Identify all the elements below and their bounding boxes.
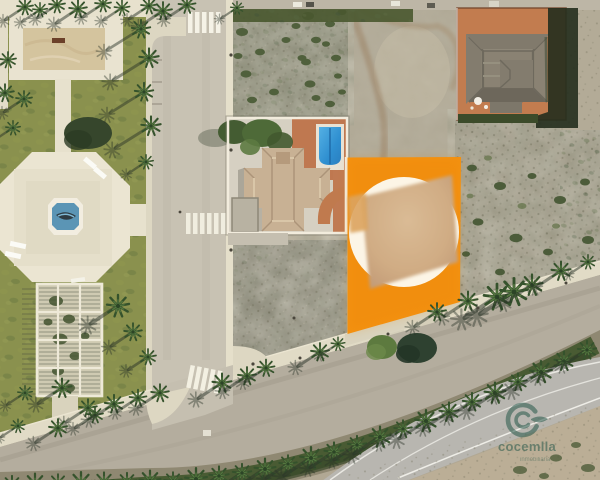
svg-text:inmobiliaria: inmobiliaria (520, 457, 551, 463)
svg-text:cocemlla: cocemlla (498, 439, 557, 454)
